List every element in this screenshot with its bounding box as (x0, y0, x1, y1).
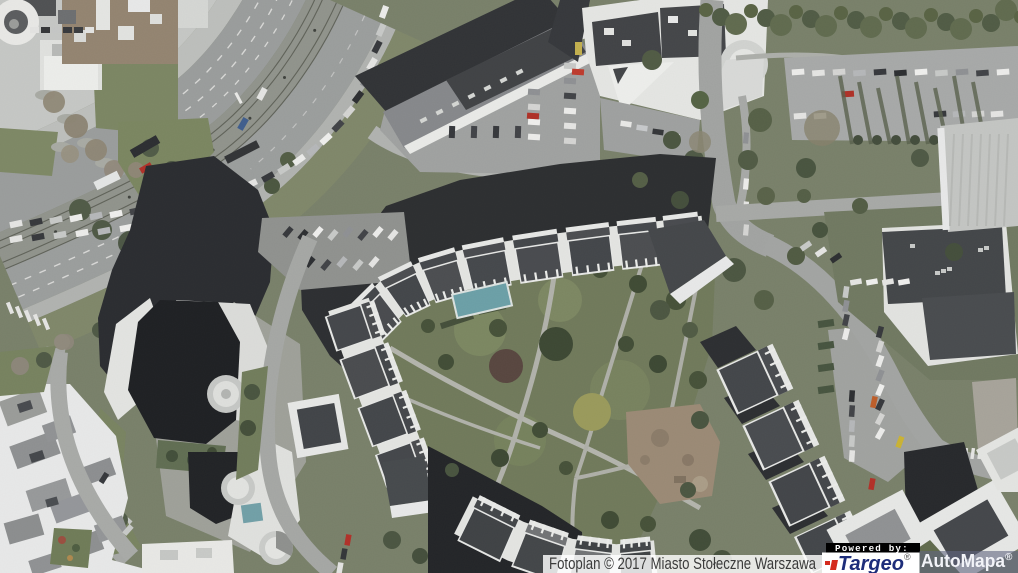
svg-text:Targeo: Targeo (838, 553, 904, 573)
svg-text:AutoMapa: AutoMapa (921, 551, 1006, 571)
svg-text:Fotoplan © 2017 Miasto Stołecz: Fotoplan © 2017 Miasto Stołeczne Warszaw… (549, 555, 816, 573)
svg-text:®: ® (1005, 552, 1013, 563)
svg-text:®: ® (904, 552, 911, 562)
